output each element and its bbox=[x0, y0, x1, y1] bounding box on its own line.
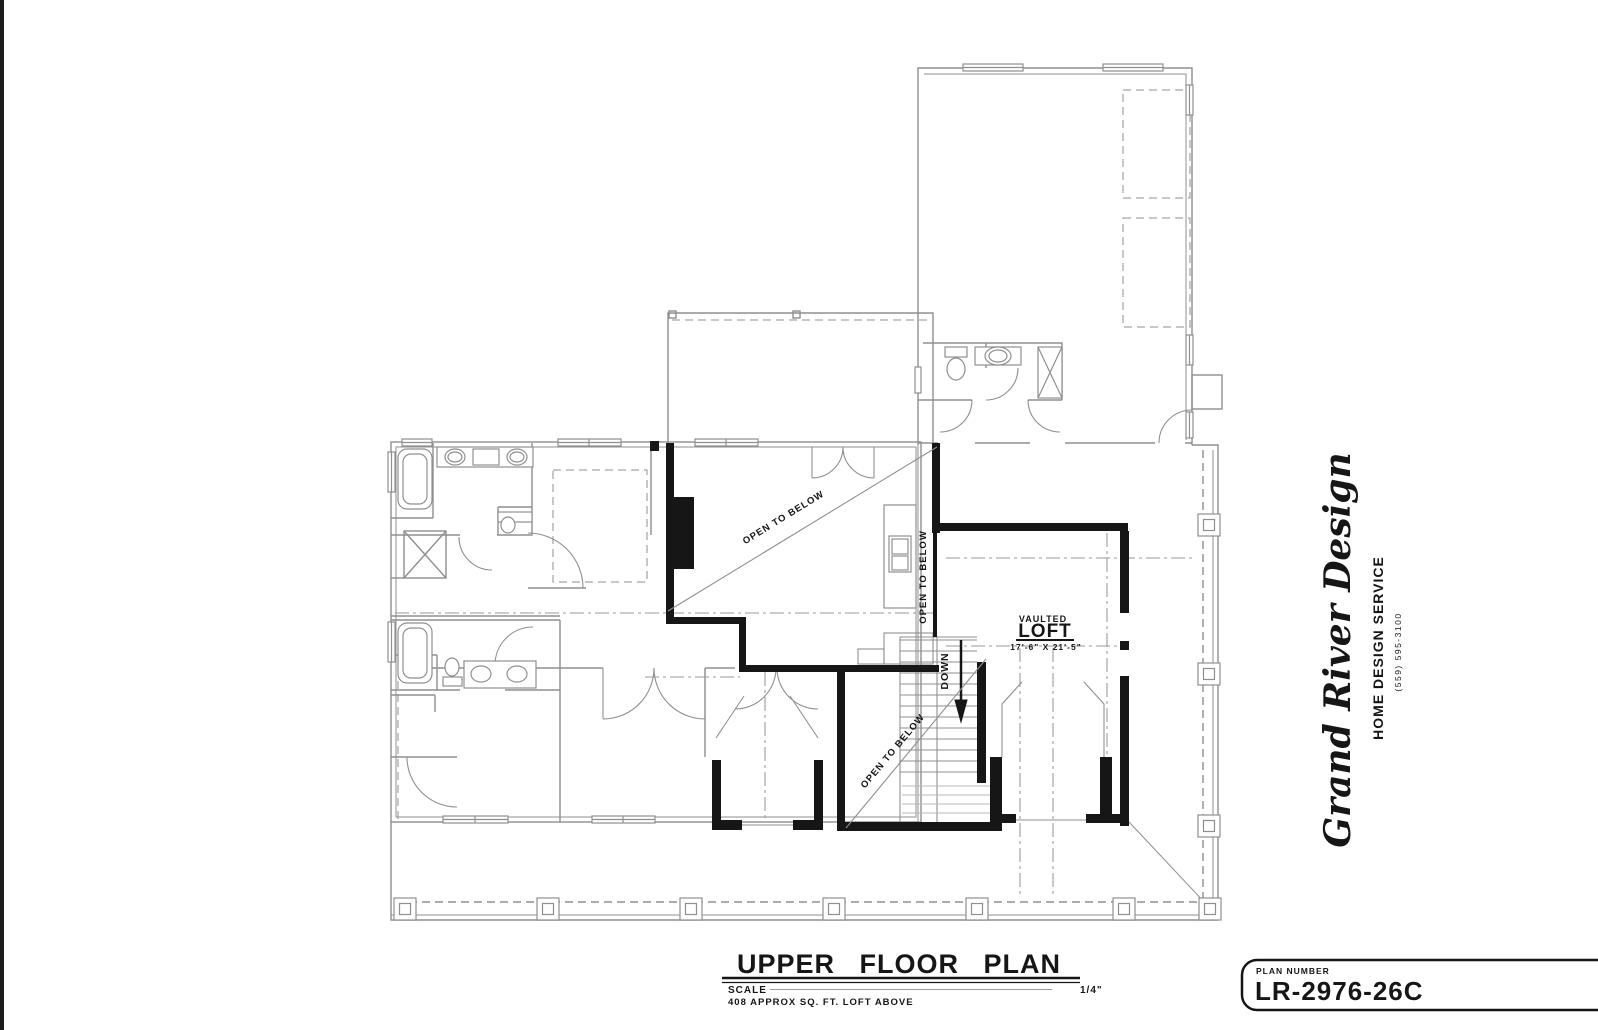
down-label: DOWN bbox=[939, 652, 951, 689]
company-name: Grand River Design bbox=[1317, 452, 1359, 847]
plan-number-box: PLAN NUMBER LR-2976-26C bbox=[1242, 960, 1598, 1010]
company-tagline: HOME DESIGN SERVICE bbox=[1370, 556, 1386, 740]
sheet-title: UPPER FLOOR PLAN bbox=[737, 949, 1061, 979]
plan-number-label: PLAN NUMBER bbox=[1256, 966, 1330, 976]
plan-number-value: LR-2976-26C bbox=[1255, 976, 1424, 1006]
floor-plan-sheet: OPEN TO BELOW OPEN TO BELOW OPEN TO BELO… bbox=[0, 0, 1598, 1030]
open-to-below-label-vertical: OPEN TO BELOW bbox=[918, 530, 929, 624]
loft-dimensions-label: 17'-6" X 21'-5" bbox=[1010, 642, 1082, 652]
scale-label: SCALE bbox=[728, 985, 767, 996]
chimney-chase bbox=[668, 497, 694, 569]
loft-label: LOFT bbox=[1018, 621, 1072, 642]
scan-edge-strip bbox=[0, 0, 4, 1030]
scale-value: 1/4" bbox=[1080, 985, 1103, 996]
company-phone: (559) 595-3100 bbox=[1393, 612, 1403, 691]
area-note: 408 APPROX SQ. FT. LOFT ABOVE bbox=[728, 997, 914, 1008]
